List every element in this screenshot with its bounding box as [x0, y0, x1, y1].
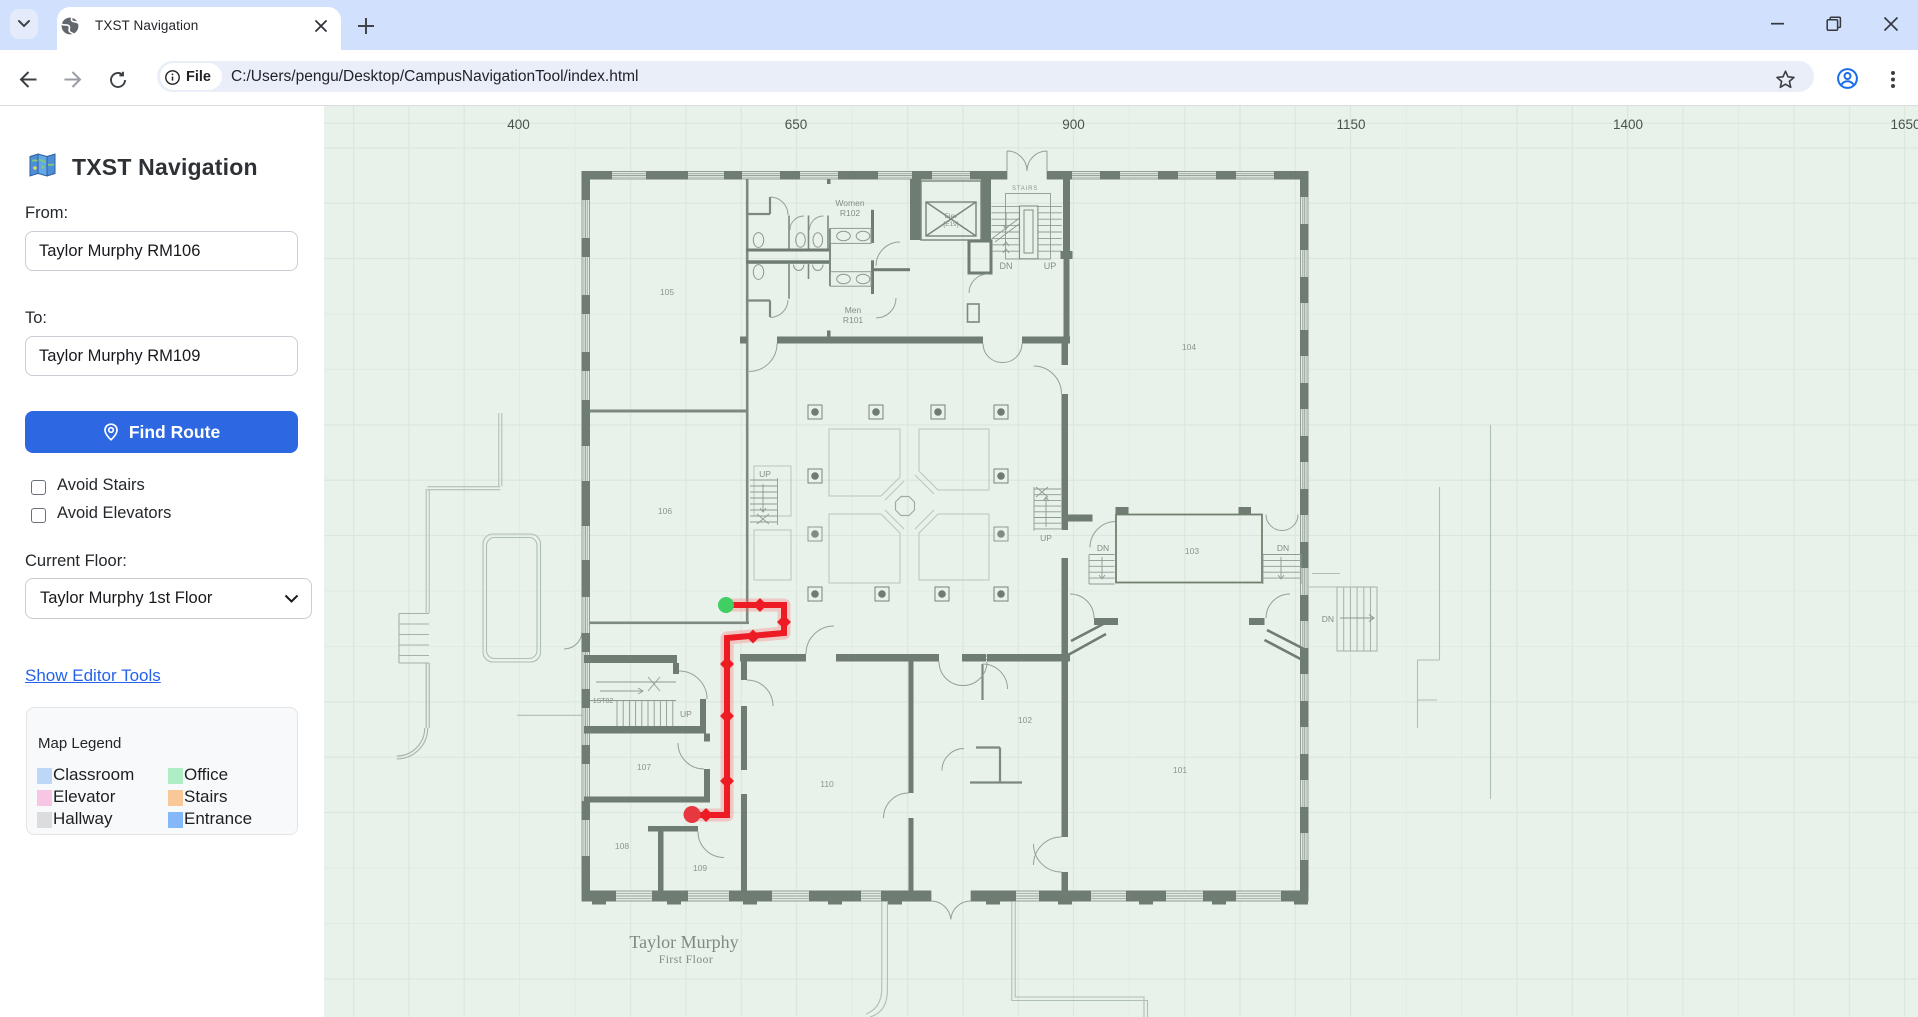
- svg-text:DN: DN: [1322, 614, 1334, 624]
- svg-text:1400: 1400: [1613, 117, 1643, 132]
- svg-text:110: 110: [820, 779, 834, 789]
- svg-text:900: 900: [1062, 117, 1085, 132]
- svg-text:Women: Women: [835, 198, 864, 208]
- svg-text:1ST02: 1ST02: [593, 698, 614, 705]
- svg-text:106: 106: [658, 506, 672, 516]
- svg-text:UP: UP: [1040, 533, 1052, 543]
- svg-text:DN: DN: [1000, 261, 1013, 271]
- svg-text:Taylor Murphy: Taylor Murphy: [629, 932, 738, 952]
- svg-text:STAIRS: STAIRS: [1012, 186, 1038, 192]
- svg-text:1150: 1150: [1336, 117, 1365, 132]
- svg-text:650: 650: [785, 117, 808, 132]
- svg-text:105: 105: [660, 287, 674, 297]
- svg-text:101: 101: [1173, 765, 1187, 775]
- svg-text:UP: UP: [1044, 261, 1057, 271]
- svg-text:102: 102: [1018, 715, 1032, 725]
- svg-text:UP: UP: [759, 469, 771, 479]
- svg-text:104: 104: [1182, 342, 1196, 352]
- svg-text:R102: R102: [840, 208, 861, 218]
- svg-text:DN: DN: [1277, 543, 1289, 553]
- svg-text:108: 108: [615, 841, 629, 851]
- svg-text:109: 109: [693, 863, 707, 873]
- svg-text:[E19]: [E19]: [943, 221, 958, 228]
- svg-text:First Floor: First Floor: [659, 954, 713, 966]
- svg-text:400: 400: [507, 117, 530, 132]
- svg-text:DN: DN: [1097, 543, 1109, 553]
- svg-text:Men: Men: [845, 305, 862, 315]
- svg-text:107: 107: [637, 762, 651, 772]
- svg-text:103: 103: [1185, 546, 1199, 556]
- svg-text:Elev: Elev: [945, 213, 958, 220]
- svg-text:UP: UP: [680, 709, 692, 719]
- svg-text:1650: 1650: [1890, 117, 1918, 132]
- svg-text:R101: R101: [843, 315, 864, 325]
